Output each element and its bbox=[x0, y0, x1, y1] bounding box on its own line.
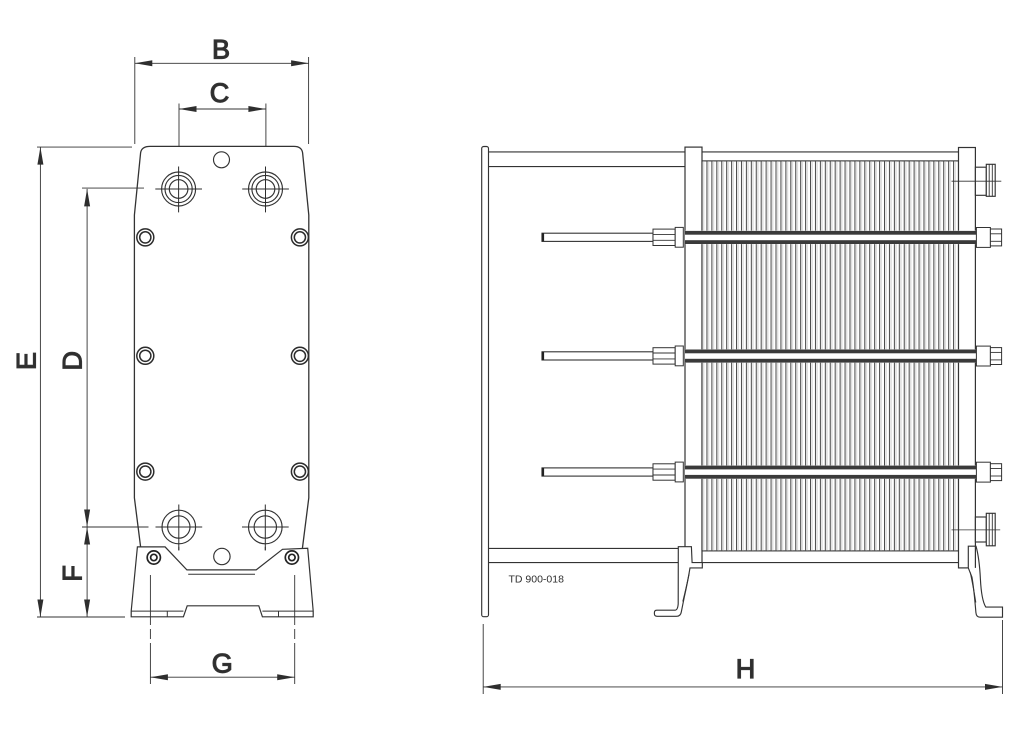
svg-text:H: H bbox=[736, 654, 756, 684]
svg-text:D: D bbox=[58, 351, 88, 371]
svg-text:E: E bbox=[12, 352, 42, 370]
svg-text:C: C bbox=[210, 78, 230, 108]
svg-text:B: B bbox=[212, 35, 230, 65]
svg-text:TD 900-018: TD 900-018 bbox=[509, 574, 565, 586]
svg-text:F: F bbox=[57, 565, 87, 582]
svg-text:G: G bbox=[212, 649, 233, 679]
